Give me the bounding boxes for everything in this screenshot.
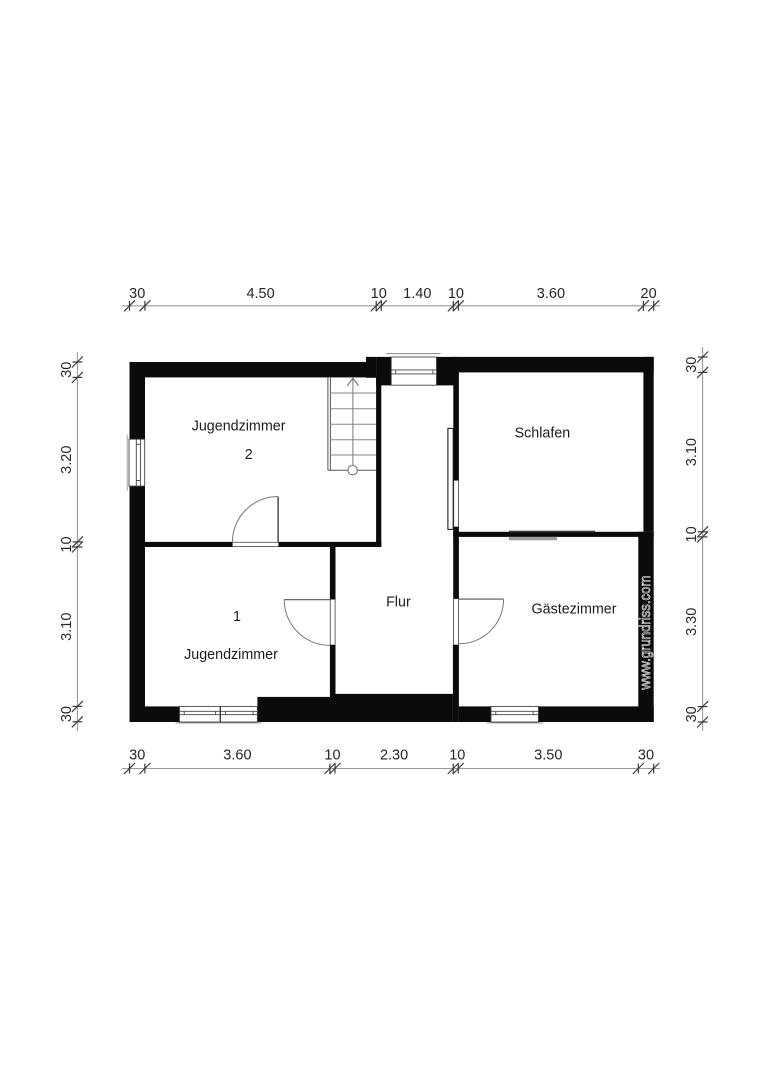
svg-text:1.40: 1.40	[403, 286, 431, 302]
svg-text:Jugendzimmer: Jugendzimmer	[184, 647, 278, 663]
svg-text:2.30: 2.30	[380, 748, 408, 764]
svg-text:www.grundriss.com: www.grundriss.com	[637, 576, 654, 691]
svg-text:30: 30	[129, 286, 145, 302]
svg-text:3.30: 3.30	[684, 608, 700, 636]
svg-text:Gästezimmer: Gästezimmer	[532, 601, 617, 617]
svg-text:3.10: 3.10	[684, 438, 700, 466]
svg-text:3.20: 3.20	[59, 446, 75, 474]
svg-text:20: 20	[641, 286, 657, 302]
svg-text:10: 10	[448, 286, 464, 302]
svg-text:4.50: 4.50	[246, 286, 274, 302]
svg-text:10: 10	[59, 536, 75, 552]
svg-text:30: 30	[59, 362, 75, 378]
svg-text:2: 2	[245, 447, 253, 463]
svg-text:30: 30	[684, 357, 700, 373]
svg-text:10: 10	[449, 748, 465, 764]
svg-text:30: 30	[129, 748, 145, 764]
svg-text:3.50: 3.50	[534, 748, 562, 764]
svg-text:10: 10	[684, 526, 700, 542]
svg-text:3.60: 3.60	[537, 286, 565, 302]
svg-text:10: 10	[371, 286, 387, 302]
svg-text:Jugendzimmer: Jugendzimmer	[192, 419, 286, 435]
svg-text:30: 30	[638, 748, 654, 764]
svg-text:3.10: 3.10	[59, 613, 75, 641]
svg-text:Flur: Flur	[386, 595, 411, 611]
svg-text:30: 30	[59, 706, 75, 722]
svg-text:30: 30	[684, 706, 700, 722]
svg-text:3.60: 3.60	[223, 748, 251, 764]
svg-text:10: 10	[324, 748, 340, 764]
svg-text:1: 1	[233, 609, 241, 625]
svg-text:Schlafen: Schlafen	[515, 426, 571, 442]
